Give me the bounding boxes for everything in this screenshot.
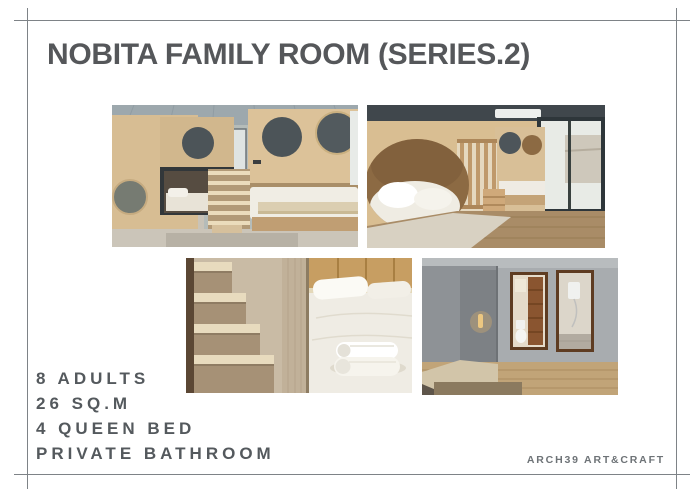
feature-adults: 8 ADULTS bbox=[36, 366, 275, 391]
room-features: 8 ADULTS 26 SQ.M 4 QUEEN BED PRIVATE BAT… bbox=[36, 366, 275, 466]
frame-line-right bbox=[676, 8, 677, 489]
feature-beds: 4 QUEEN BED bbox=[36, 416, 275, 441]
brand-credit: ARCH39 ART&CRAFT bbox=[527, 454, 665, 466]
frame-line-top bbox=[14, 20, 690, 21]
feature-bathroom: PRIVATE BATHROOM bbox=[36, 441, 275, 466]
room-presentation-slide: NOBITA FAMILY ROOM (SERIES.2) bbox=[0, 0, 700, 497]
feature-area: 26 SQ.M bbox=[36, 391, 275, 416]
photo-bunk-room-overview bbox=[112, 105, 358, 247]
frame-line-bottom bbox=[14, 474, 690, 475]
photo-oval-nook-window bbox=[367, 105, 605, 248]
photo-private-bathroom bbox=[422, 258, 618, 395]
page-title: NOBITA FAMILY ROOM (SERIES.2) bbox=[47, 38, 530, 72]
frame-line-left bbox=[27, 8, 28, 489]
